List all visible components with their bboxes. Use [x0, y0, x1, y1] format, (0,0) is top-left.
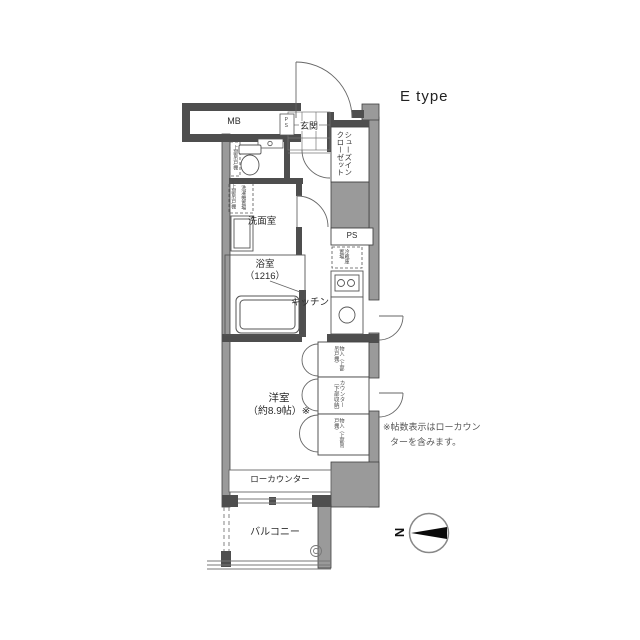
- label-closet-top: 物入（上部吊戸棚）: [333, 346, 344, 374]
- label-laundry-shelf: 上部吊戸棚: [230, 184, 235, 212]
- label-laundry: 洗濯機置場: [240, 185, 245, 212]
- label-mb: MB: [190, 116, 278, 126]
- plan-type-title: E type: [400, 88, 449, 105]
- stove-icon: [331, 271, 363, 297]
- label-bathroom: 浴室 （1216）: [233, 259, 297, 283]
- label-ps: PS: [331, 231, 373, 240]
- toilet-icon: [239, 145, 261, 175]
- label-fridge: 冷蔵庫 置場: [338, 249, 349, 266]
- compass-north-letter: N: [393, 528, 408, 537]
- footnote: ※帖数表示はローカウン ターを含みます。: [383, 420, 481, 449]
- label-counter-storage: カウンター（下部収納）: [332, 380, 344, 412]
- label-closet-bottom: 物入（上部吊戸棚）: [333, 418, 344, 452]
- label-balcony: バルコニー: [230, 527, 320, 539]
- bathtub-icon: [236, 296, 299, 333]
- label-genkan: 玄関: [288, 121, 330, 131]
- sink-icon: [331, 297, 363, 334]
- shoe-cabinet: [258, 139, 283, 148]
- floor-plan-svg: [0, 0, 640, 640]
- label-washroom: 洗面室: [234, 217, 290, 228]
- label-western-room: 洋室 （約8.9帖）※: [228, 391, 330, 419]
- floor-plan-page: E type MB PS 玄関 シューズイン クローゼット 上部吊戸棚 上部吊戸…: [0, 0, 640, 640]
- label-low-counter: ローカウンター: [229, 475, 331, 485]
- compass-icon: [410, 514, 449, 553]
- label-kitchen: キッチン: [291, 298, 329, 309]
- label-toilet-shelf: 上部吊戸棚: [232, 145, 237, 175]
- label-shoes-in-closet: シューズイン クローゼット: [336, 131, 352, 181]
